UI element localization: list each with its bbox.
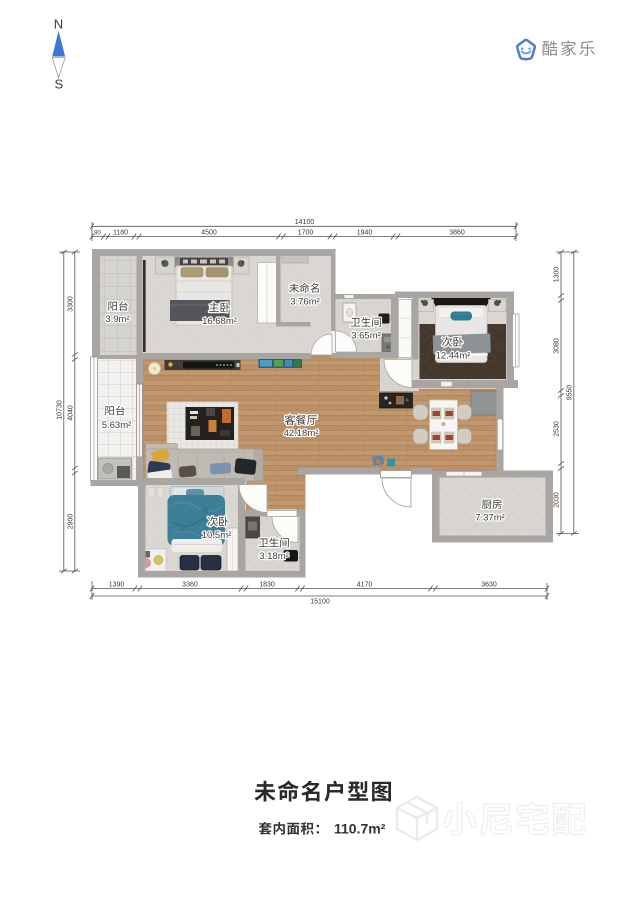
svg-text:3860: 3860 [449, 230, 465, 237]
svg-text:1390: 1390 [109, 582, 125, 589]
svg-text:1180: 1180 [113, 230, 128, 237]
svg-text:2530: 2530 [554, 421, 561, 437]
svg-text:3.18m²: 3.18m² [259, 551, 289, 562]
svg-text:3.76m²: 3.76m² [290, 297, 320, 308]
svg-text:12.44m²: 12.44m² [436, 351, 471, 362]
svg-text:3360: 3360 [182, 582, 198, 589]
svg-text:42.18m²: 42.18m² [284, 428, 319, 439]
svg-text:10730: 10730 [57, 400, 64, 420]
svg-text:10.5m²: 10.5m² [202, 530, 232, 541]
svg-text:1300: 1300 [554, 267, 561, 283]
svg-text:N: N [54, 17, 63, 32]
svg-text:9550: 9550 [566, 385, 573, 401]
svg-text:4040: 4040 [68, 405, 75, 421]
svg-text:14100: 14100 [295, 219, 315, 226]
svg-text:S: S [54, 77, 63, 92]
svg-text:3.9m²: 3.9m² [105, 314, 129, 325]
svg-text:110.7m²: 110.7m² [334, 821, 386, 837]
svg-text:90: 90 [94, 231, 101, 237]
svg-text:5.63m²: 5.63m² [102, 420, 132, 431]
svg-text:7.37m²: 7.37m² [475, 513, 505, 524]
svg-text:1830: 1830 [259, 582, 275, 589]
svg-text:4500: 4500 [201, 230, 217, 237]
svg-text:2030: 2030 [554, 492, 561, 508]
svg-text:3.65m²: 3.65m² [351, 331, 381, 342]
svg-text:3080: 3080 [554, 338, 561, 354]
svg-text:2900: 2900 [68, 514, 75, 530]
svg-text:1940: 1940 [357, 230, 373, 237]
svg-text:3630: 3630 [481, 582, 497, 589]
svg-text:4170: 4170 [357, 582, 373, 589]
svg-text:16.68m²: 16.68m² [202, 316, 237, 327]
svg-text:3300: 3300 [68, 296, 75, 312]
svg-text:15100: 15100 [310, 599, 330, 606]
svg-text:1700: 1700 [298, 230, 314, 237]
